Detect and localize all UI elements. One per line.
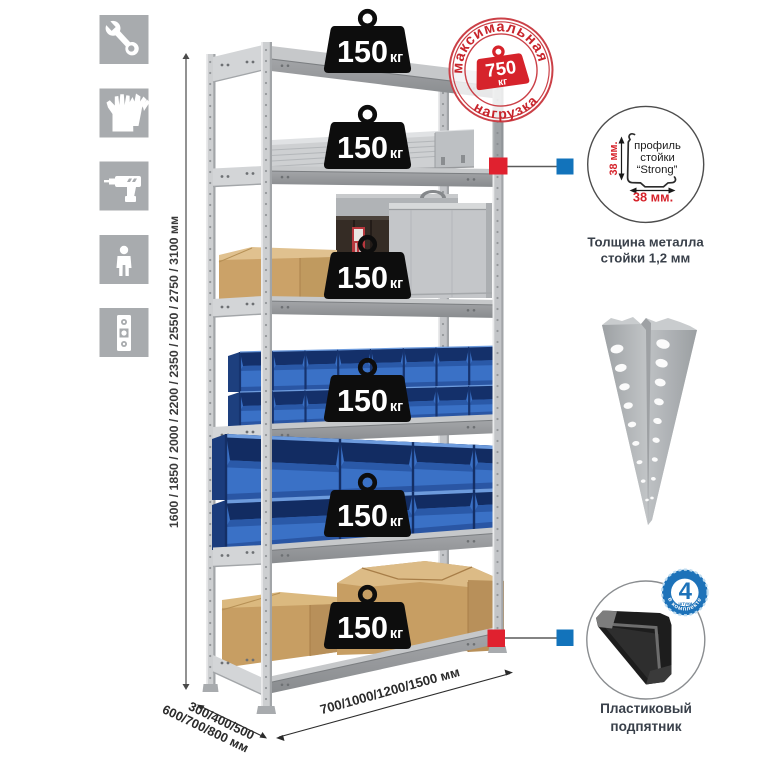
svg-text:38 мм.: 38 мм.: [608, 142, 620, 176]
svg-text:150: 150: [337, 384, 388, 418]
svg-text:кг: кг: [390, 276, 403, 292]
svg-text:стойки 1,2 мм: стойки 1,2 мм: [601, 251, 691, 266]
svg-text:кг: кг: [390, 50, 403, 66]
svg-text:Пластиковый: Пластиковый: [600, 701, 692, 716]
svg-text:150: 150: [337, 35, 388, 69]
svg-text:Толщина металла: Толщина металла: [587, 235, 704, 250]
svg-text:150: 150: [337, 611, 388, 645]
svg-text:стойки: стойки: [640, 152, 675, 164]
svg-text:кг: кг: [390, 626, 403, 642]
svg-text:“Strong”: “Strong”: [637, 164, 678, 176]
svg-text:штуки: штуки: [678, 601, 692, 606]
svg-text:кг: кг: [497, 76, 508, 88]
svg-text:кг: кг: [390, 146, 403, 162]
svg-text:1600 / 1850 / 2000 / 2200 / 23: 1600 / 1850 / 2000 / 2200 / 2350 / 2550 …: [167, 216, 181, 528]
svg-text:150: 150: [337, 261, 388, 295]
svg-text:38 мм.: 38 мм.: [633, 190, 673, 205]
svg-text:подпятник: подпятник: [610, 719, 681, 734]
svg-text:кг: кг: [390, 514, 403, 530]
svg-text:150: 150: [337, 131, 388, 165]
svg-text:профиль: профиль: [634, 140, 681, 152]
svg-text:150: 150: [337, 499, 388, 533]
svg-text:кг: кг: [390, 399, 403, 415]
